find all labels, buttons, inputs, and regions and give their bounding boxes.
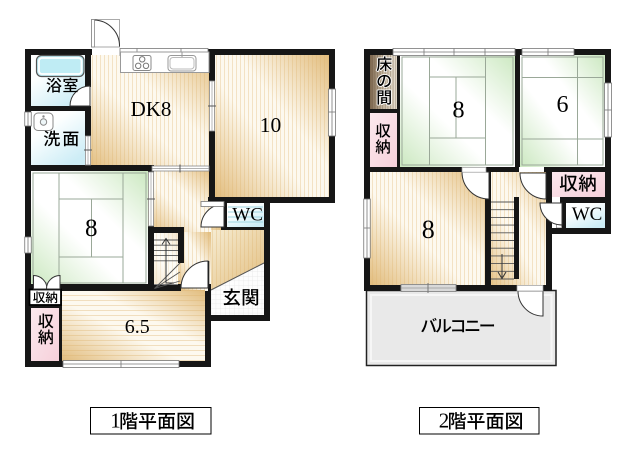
- svg-text:6: 6: [557, 92, 569, 118]
- svg-text:2: 2: [439, 409, 450, 433]
- svg-text:6.5: 6.5: [125, 316, 150, 338]
- svg-text:WC: WC: [232, 205, 263, 226]
- svg-text:WC: WC: [572, 204, 603, 225]
- svg-text:8: 8: [85, 215, 98, 242]
- svg-text:8: 8: [452, 97, 464, 124]
- svg-text:DK8: DK8: [131, 97, 172, 121]
- svg-text:10: 10: [260, 113, 282, 137]
- svg-text:8: 8: [422, 215, 435, 244]
- svg-text:1: 1: [110, 409, 121, 433]
